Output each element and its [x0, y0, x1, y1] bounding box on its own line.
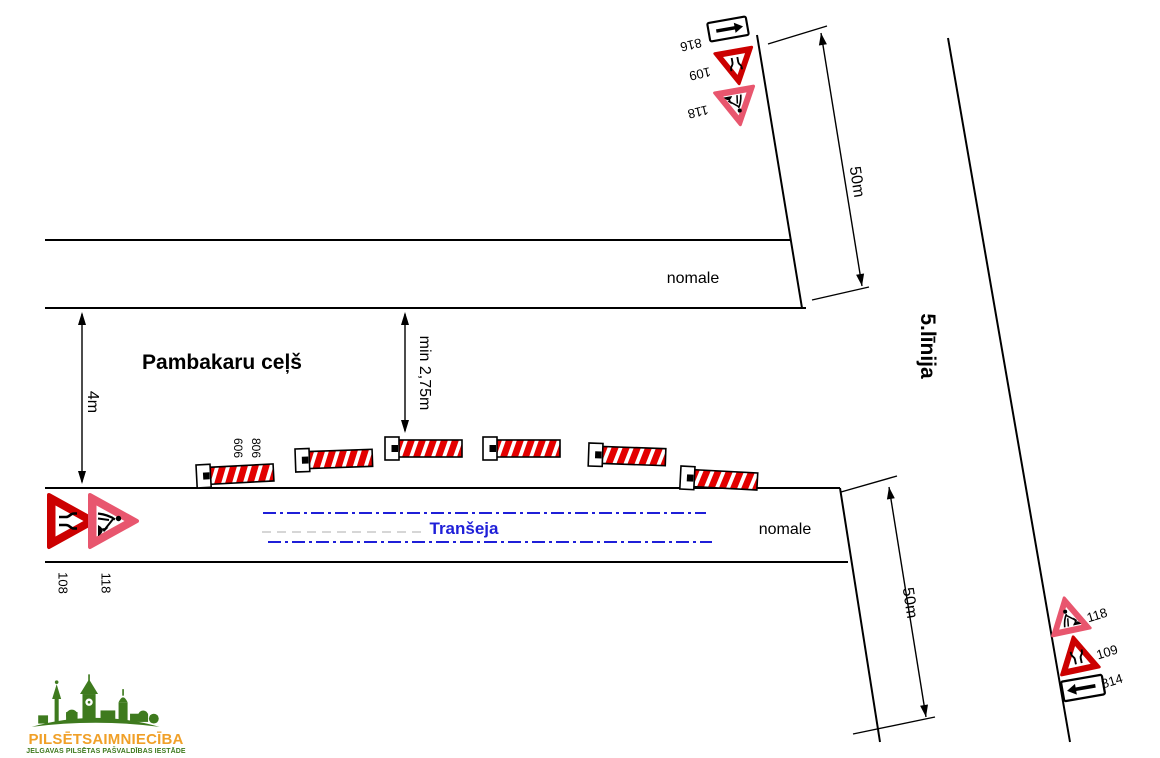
road-narrows-sign-icon [1054, 633, 1099, 675]
barrier-icon [295, 446, 381, 472]
traffic-scheme-canvas: Pambakaru ceļš 5.līnija nomale nomale Tr… [0, 0, 1160, 758]
road-name-pambakaru: Pambakaru ceļš [142, 351, 302, 375]
barrier-board-label: 606 [231, 438, 245, 458]
barrier-icon [196, 461, 282, 488]
diagonal-left-edge-lower [840, 488, 880, 742]
barrier-lamp-label: 806 [249, 438, 263, 458]
logo-skyline-icon [32, 674, 160, 726]
diagonal-left-edge-upper [757, 35, 802, 308]
barrier-icon [385, 437, 470, 460]
dimension-50m-bottom-arrow [841, 476, 935, 734]
dimension-label-4m: 4m [83, 391, 101, 413]
road-name-5linija: 5.līnija [915, 313, 939, 378]
logo-title: PILSĒTSAIMNIECĪBA [20, 731, 192, 748]
barrier-icon [588, 443, 674, 469]
dimension-50m-top-arrow [768, 26, 869, 300]
sign-group-left [49, 495, 137, 547]
arrow-left-sign-icon [707, 16, 749, 41]
road-works-sign-icon [1045, 594, 1090, 636]
arrow-left-sign-icon [1061, 675, 1105, 702]
shoulder-label-top: nomale [667, 270, 719, 288]
road-pambakaru-edges [45, 240, 848, 562]
barrier-icon [680, 466, 766, 493]
road-works-sign-icon [715, 86, 760, 128]
barrier-row [196, 437, 766, 493]
road-works-sign-icon [90, 495, 137, 547]
shoulder-label-bottom: nomale [759, 521, 811, 539]
road-narrows-sign-icon [715, 47, 758, 87]
sign-label-118-left: 118 [99, 573, 114, 594]
sign-label-108-left: 108 [56, 572, 71, 594]
barrier-icon [483, 437, 568, 460]
dimension-min275-arrow [401, 312, 409, 433]
dimension-label-min275: min 2,75m [415, 336, 433, 411]
trench-label: Tranšeja [427, 519, 502, 539]
logo-subtitle: JELGAVAS PILSĒTAS PAŠVALDĪBAS IESTĀDE [20, 748, 192, 755]
sign-group-top [707, 16, 760, 128]
scheme-drawing [0, 0, 1160, 758]
